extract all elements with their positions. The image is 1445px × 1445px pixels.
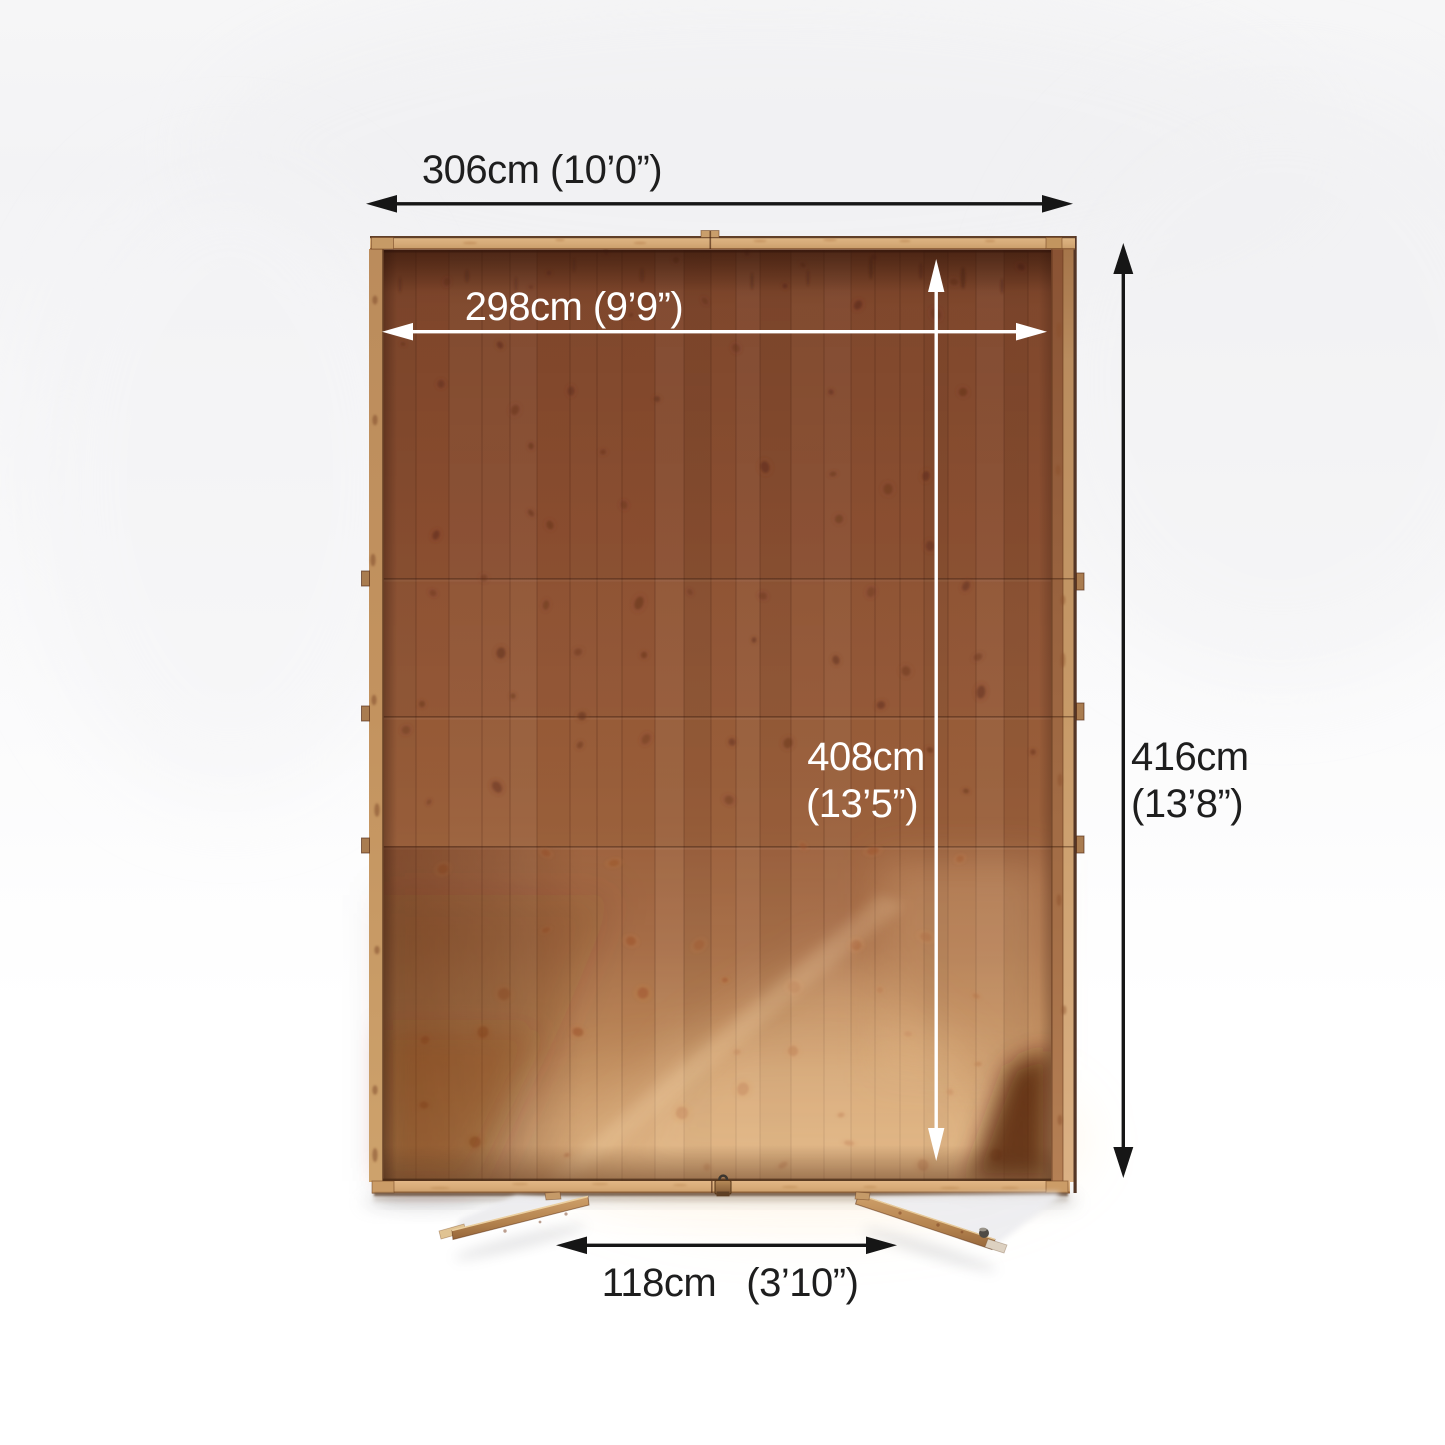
svg-text:118cm (3’10”): 118cm (3’10”) xyxy=(602,1261,859,1305)
svg-text:408cm: 408cm xyxy=(807,735,925,779)
svg-text:298cm (9’9”): 298cm (9’9”) xyxy=(465,285,684,329)
svg-text:306cm (10’0”): 306cm (10’0”) xyxy=(422,148,662,192)
svg-text:416cm: 416cm xyxy=(1131,735,1249,779)
svg-text:(13’5”): (13’5”) xyxy=(806,782,918,826)
svg-text:(13’8”): (13’8”) xyxy=(1131,782,1243,826)
